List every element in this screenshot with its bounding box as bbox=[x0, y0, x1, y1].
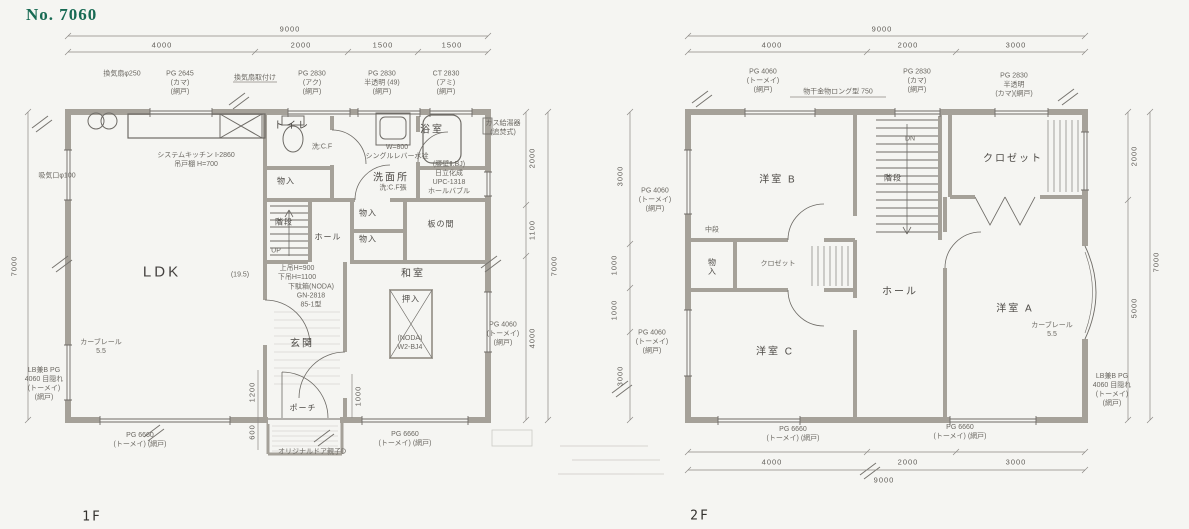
text-line: PG 4060 bbox=[639, 186, 671, 195]
text-line: (網戸) bbox=[1093, 399, 1132, 408]
dim-2f-bottom-1: 4000 bbox=[762, 458, 783, 467]
text-line: 4060 目隠れ bbox=[25, 375, 64, 384]
dim-2f-top-3: 3000 bbox=[1006, 41, 1027, 50]
text-line: (網戸) bbox=[364, 88, 399, 97]
dim-1f-top-4: 1500 bbox=[442, 41, 463, 50]
text-line: (網戸) bbox=[298, 88, 326, 97]
text-line: CT 2830 bbox=[433, 69, 460, 78]
dim-1f-porch-2: 600 bbox=[248, 424, 257, 440]
dim-1f-right-2: 1100 bbox=[528, 220, 537, 240]
text-line: カーブレール bbox=[80, 338, 122, 347]
fixtures-and-stairs bbox=[88, 113, 1078, 451]
stairs-dn-label: DN bbox=[905, 134, 915, 143]
text-line: (追焚式) bbox=[486, 128, 521, 137]
text-line: 4060 目隠れ bbox=[1093, 381, 1132, 390]
text-line: PG 2645 bbox=[166, 69, 194, 78]
text-line: ホールバブル bbox=[428, 187, 470, 196]
room-label-yoshitsu-b: 洋室 B bbox=[759, 171, 796, 186]
room-label-oshiire: 押入 bbox=[402, 294, 420, 305]
text-line: W2-BJ4 bbox=[398, 343, 423, 352]
dim-2f-top-1: 4000 bbox=[762, 41, 783, 50]
curtain-rail-note-1f: カーブレール 5.5 bbox=[80, 338, 122, 356]
kitchen-spec: システムキッチン I-2860 吊戸棚 H=700 bbox=[157, 151, 235, 169]
text-line: (網戸) bbox=[747, 86, 779, 95]
room-label-washroom: 洗面所 bbox=[373, 169, 409, 184]
dim-1f-porch-3: 1000 bbox=[354, 386, 363, 407]
floor-label-2f: 2F bbox=[690, 509, 710, 524]
toilet-floor-note: 洗:C.F bbox=[312, 142, 332, 151]
vent-fan-note: 換気扇φ250 bbox=[103, 69, 140, 78]
room-label-storage-c: 物入 bbox=[359, 234, 377, 245]
window-label-pg4060-2f-left-1: PG 4060 (トーメイ) (網戸) bbox=[639, 186, 671, 213]
window-label-pg6660-1f-right: PG 6660 (トーメイ) (網戸) bbox=[379, 430, 432, 448]
text-line: (トーメイ) bbox=[1093, 390, 1132, 399]
text-line: PG 6660 bbox=[767, 425, 820, 434]
text-line: 5.5 bbox=[80, 347, 122, 356]
text-line: (腰壁Ⅱ.BJ) bbox=[428, 160, 470, 169]
window-label-pg6660-2f-right: PG 6660 (トーメイ) (網戸) bbox=[934, 423, 987, 441]
sheet-title: No. 7060 bbox=[26, 5, 97, 25]
dim-2f-top-total: 9000 bbox=[872, 25, 893, 34]
dim-2f-top-2: 2000 bbox=[898, 41, 919, 50]
dim-2f-left-2: 1000 bbox=[610, 255, 619, 276]
room-label-closet-2f: クロゼット bbox=[983, 150, 1043, 165]
curtain-rail-note-2f: カーブレール 5.5 bbox=[1031, 321, 1073, 339]
room-label-yoshitsu-a: 洋室 A bbox=[996, 300, 1033, 315]
dim-1f-right-1: 2000 bbox=[528, 148, 537, 169]
basin-spec: W=800 シングルレバー水栓 bbox=[366, 143, 429, 161]
window-label-pg6660-2f-left: PG 6660 (トーメイ) (網戸) bbox=[767, 425, 820, 443]
dim-1f-top-1: 4000 bbox=[152, 41, 173, 50]
window-label-pg4060-2f-top: PG 4060 (トーメイ) (網戸) bbox=[747, 67, 779, 94]
text-line: 5.5 bbox=[1031, 330, 1073, 339]
bath-spec: (腰壁Ⅱ.BJ) 日立化成 UPC-1318 ホールバブル bbox=[428, 160, 470, 196]
text-line: (カマ) bbox=[166, 78, 194, 87]
laundry-pole-note: 物干金物ロング型 750 bbox=[803, 87, 873, 96]
window-label-ct2830: CT 2830 (アミ) (網戸) bbox=[433, 69, 460, 96]
dim-2f-right-total: 7000 bbox=[1152, 252, 1161, 273]
window-label-lb4060-1f: LB兼B PG 4060 目隠れ (トーメイ) (網戸) bbox=[25, 366, 64, 402]
text-line: (NODA) bbox=[398, 334, 423, 343]
dim-2f-left-3: 1000 bbox=[610, 300, 619, 321]
window-label-pg2830-2f-a: PG 2830 (カマ) (網戸) bbox=[903, 67, 931, 94]
text-line: 85-1型 bbox=[288, 301, 334, 310]
text-line: W=800 bbox=[366, 143, 429, 152]
text-line: (トーメイ) (網戸) bbox=[934, 432, 987, 441]
dim-2f-left-4: 3000 bbox=[616, 366, 625, 387]
text-line: (トーメイ) bbox=[25, 384, 64, 393]
text-line: (トーメイ) (網戸) bbox=[114, 440, 167, 449]
text-line: (トーメイ) bbox=[636, 337, 668, 346]
text-line: LB兼B PG bbox=[1093, 372, 1132, 381]
text-line: (網戸) bbox=[166, 88, 194, 97]
room-label-storage-a: 物入 bbox=[277, 176, 295, 187]
text-line: (網戸) bbox=[903, 86, 931, 95]
dim-2f-left-1: 3000 bbox=[616, 166, 625, 187]
dim-1f-top-3: 1500 bbox=[373, 41, 394, 50]
room-label-itanoma: 板の間 bbox=[428, 219, 455, 230]
text-line: (網戸) bbox=[433, 88, 460, 97]
room-label-storage-2f: 物入 bbox=[707, 258, 718, 276]
text-line: PG 2830 bbox=[298, 69, 326, 78]
dim-2f-bottom-2: 2000 bbox=[898, 458, 919, 467]
text-line: (トーメイ) bbox=[639, 195, 671, 204]
room-label-bath: 浴室 bbox=[420, 121, 444, 136]
text-line: 上吊H=900 bbox=[278, 264, 316, 273]
room-label-yoshitsu-c: 洋室 C bbox=[756, 343, 794, 358]
text-line: (トーメイ) (網戸) bbox=[379, 439, 432, 448]
text-line: PG 4060 bbox=[747, 67, 779, 76]
dim-2f-bottom-total: 9000 bbox=[874, 476, 895, 485]
text-line: PG 2830 bbox=[995, 71, 1032, 80]
text-line: (網戸) bbox=[487, 339, 519, 348]
dim-1f-porch-1: 1200 bbox=[248, 382, 257, 403]
dim-2f-bottom-3: 3000 bbox=[1006, 458, 1027, 467]
water-heater-note: ガス給湯器 (追焚式) bbox=[486, 119, 521, 137]
room-label-washitsu: 和室 bbox=[401, 265, 425, 280]
text-line: ガス給湯器 bbox=[486, 119, 521, 128]
text-line: 吊戸棚 H=700 bbox=[157, 160, 235, 169]
lintel-note: 上吊H=900 下吊H=1100 bbox=[278, 264, 316, 282]
window-label-pg4060-right: PG 4060 (トーメイ) (網戸) bbox=[487, 320, 519, 347]
room-label-stairs-1f: 階段 bbox=[275, 217, 293, 228]
shoe-cabinet-spec: 下駄箱(NODA) GN-2818 85-1型 bbox=[288, 282, 334, 309]
room-label-storage-b: 物入 bbox=[359, 208, 377, 219]
dim-2f-right-1: 2000 bbox=[1130, 146, 1139, 167]
text-line: GN-2818 bbox=[288, 291, 334, 300]
plan-1f-walls bbox=[68, 112, 488, 454]
room-label-toilet: トイレ bbox=[274, 117, 310, 132]
text-line: カーブレール bbox=[1031, 321, 1073, 330]
text-line: (トーメイ) bbox=[747, 76, 779, 85]
dim-1f-top-2: 2000 bbox=[291, 41, 312, 50]
text-line: (アク) bbox=[298, 78, 326, 87]
washroom-floor-note: 洗:C.F張 bbox=[379, 183, 406, 192]
text-line: (トーメイ) bbox=[487, 329, 519, 338]
floor-plan-sheet: No. 7060 LDK (19.5) トイレ 浴室 洗面所 物入 階段 UP … bbox=[0, 0, 1189, 529]
window-label-pg2830-b: PG 2830 半透明 (49) (網戸) bbox=[364, 69, 399, 96]
room-label-hall-1f: ホール bbox=[315, 232, 342, 243]
text-line: PG 6660 bbox=[379, 430, 432, 439]
text-line: PG 2830 bbox=[903, 67, 931, 76]
text-line: LB兼B PG bbox=[25, 366, 64, 375]
text-line: シングルレバー水栓 bbox=[366, 152, 429, 161]
window-label-lb4060-2f: LB兼B PG 4060 目隠れ (トーメイ) (網戸) bbox=[1093, 372, 1132, 408]
text-line: 日立化成 bbox=[428, 169, 470, 178]
text-line: 半透明 bbox=[995, 80, 1032, 89]
text-line: (網戸) bbox=[636, 347, 668, 356]
dimension-lines bbox=[25, 33, 1153, 473]
text-line: PG 6660 bbox=[934, 423, 987, 432]
text-line: 下吊H=1100 bbox=[278, 273, 316, 282]
floor-label-1f: 1F bbox=[82, 510, 102, 525]
text-line: PG 4060 bbox=[636, 328, 668, 337]
room-size-ldk: (19.5) bbox=[231, 270, 249, 279]
text-line: (網戸) bbox=[639, 205, 671, 214]
oshiire-spec: (NODA) W2-BJ4 bbox=[398, 334, 423, 352]
room-label-porch: ポーチ bbox=[290, 403, 317, 414]
room-label-closet-center: クロゼット bbox=[761, 259, 796, 268]
intake-vent-note: 吸気口φ100 bbox=[38, 171, 75, 180]
text-line: UPC-1318 bbox=[428, 178, 470, 187]
text-line: PG 2830 bbox=[364, 69, 399, 78]
room-label-hall-2f: ホール bbox=[882, 283, 918, 298]
window-label-pg2645: PG 2645 (カマ) (網戸) bbox=[166, 69, 194, 96]
text-line: PG 6660 bbox=[114, 431, 167, 440]
text-line: システムキッチン I-2860 bbox=[157, 151, 235, 160]
window-label-pg6660-1f-left: PG 6660 (トーメイ) (網戸) bbox=[114, 431, 167, 449]
window-label-pg2830-a: PG 2830 (アク) (網戸) bbox=[298, 69, 326, 96]
vent-install-note: 換気扇取付け bbox=[234, 73, 276, 82]
dim-1f-left-total: 7000 bbox=[10, 256, 19, 277]
stairs-up-label: UP bbox=[271, 246, 281, 255]
text-line: 下駄箱(NODA) bbox=[288, 282, 334, 291]
dim-1f-top-total: 9000 bbox=[280, 25, 301, 34]
text-line: 半透明 (49) bbox=[364, 78, 399, 87]
text-line: (トーメイ) (網戸) bbox=[767, 434, 820, 443]
text-line: (網戸) bbox=[25, 393, 64, 402]
window-label-pg4060-2f-left-2: PG 4060 (トーメイ) (網戸) bbox=[636, 328, 668, 355]
text-line: (アミ) bbox=[433, 78, 460, 87]
scan-artifacts bbox=[492, 430, 664, 474]
window-label-pg2830-2f-b: PG 2830 半透明 (カマ)(網戸) bbox=[995, 71, 1032, 98]
text-line: (カマ)(網戸) bbox=[995, 90, 1032, 99]
dim-1f-right-3: 4000 bbox=[528, 328, 537, 349]
dim-2f-right-2: 5000 bbox=[1130, 298, 1139, 319]
entrance-door-note: オリジナルドア親子D bbox=[278, 447, 346, 456]
shelf-note-chudan: 中段 bbox=[705, 225, 719, 234]
text-line: (カマ) bbox=[903, 76, 931, 85]
dim-1f-right-total: 7000 bbox=[550, 256, 559, 277]
room-label-stairs-2f: 階段 bbox=[884, 173, 902, 184]
room-label-ldk: LDK bbox=[143, 264, 181, 281]
text-line: PG 4060 bbox=[487, 320, 519, 329]
room-label-genkan: 玄関 bbox=[290, 335, 314, 350]
